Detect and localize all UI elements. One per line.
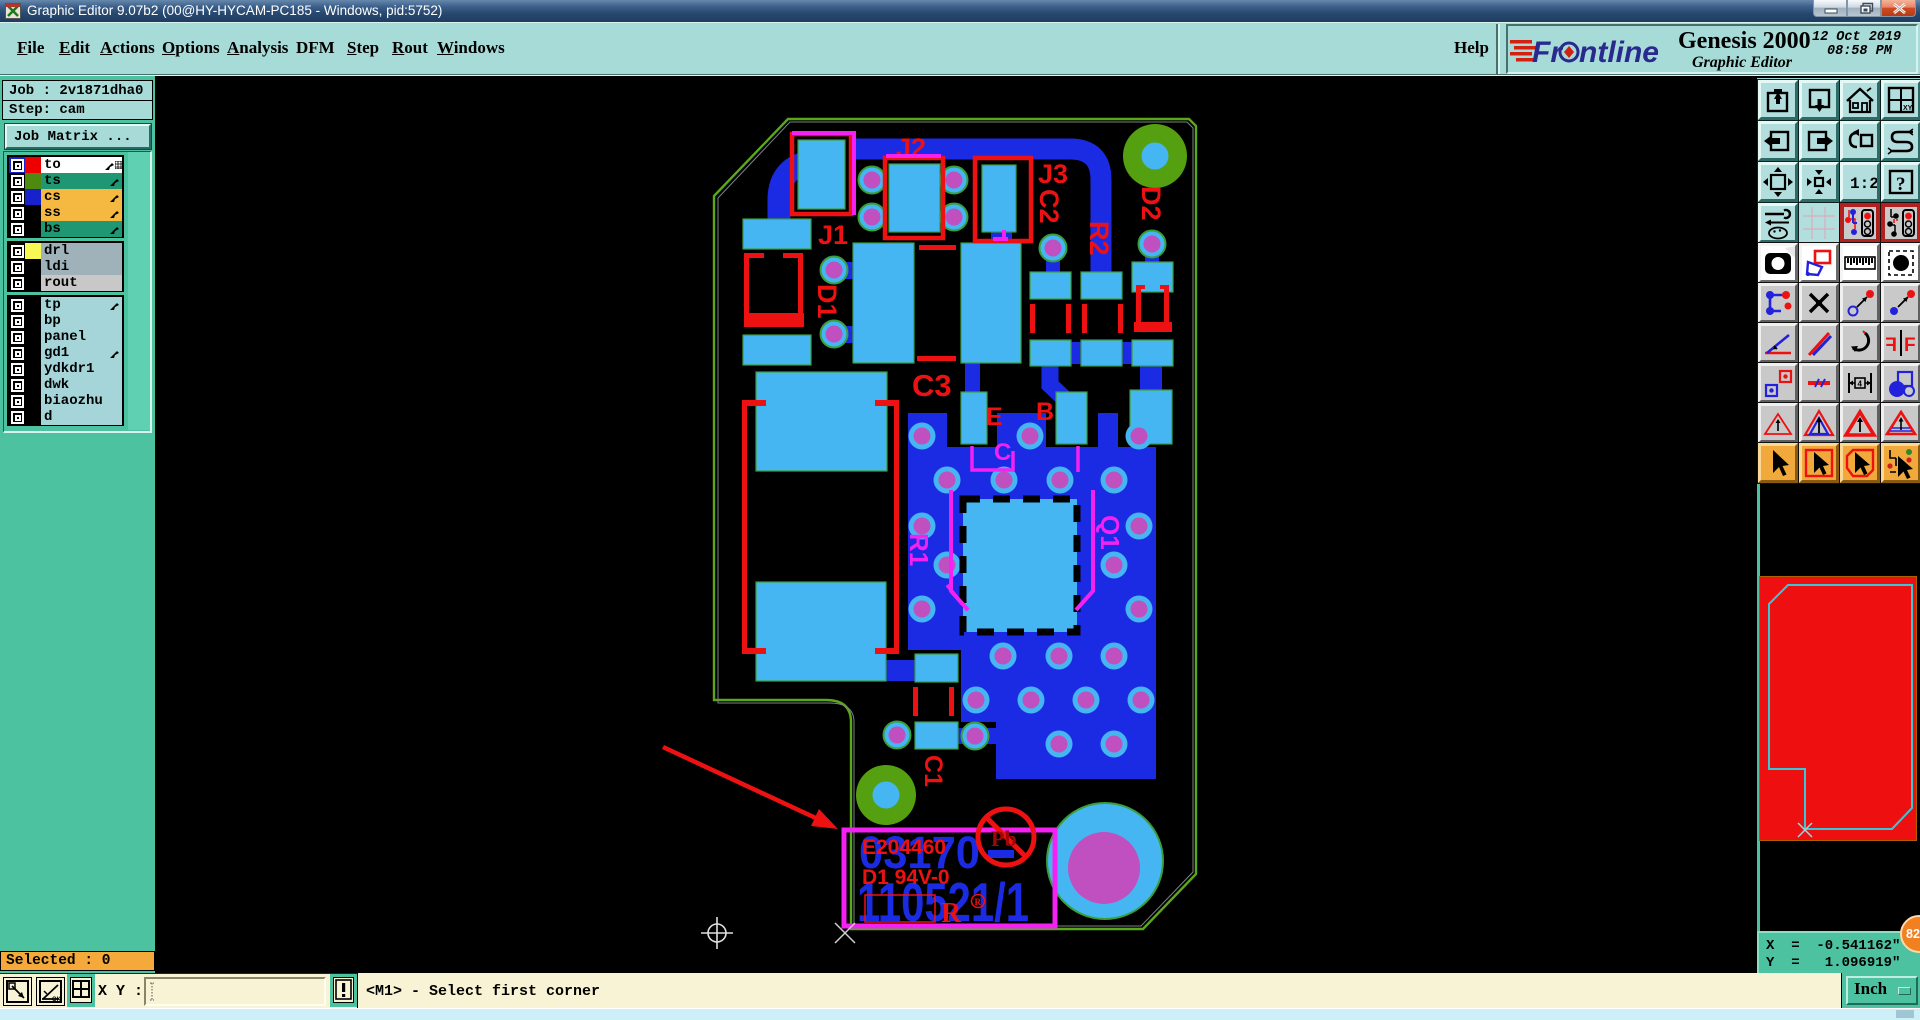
svg-text:Q1: Q1 [1095, 515, 1125, 550]
svg-text:R1: R1 [904, 533, 934, 566]
svg-text:D2: D2 [1136, 186, 1166, 221]
svg-text:R2: R2 [1084, 221, 1114, 256]
svg-text:C2: C2 [1034, 189, 1064, 224]
svg-text:D1 94V-0: D1 94V-0 [862, 866, 950, 889]
svg-text:D1: D1 [812, 284, 842, 319]
svg-text:C: C [994, 439, 1011, 466]
svg-text:J3: J3 [1038, 159, 1068, 189]
svg-text:J1: J1 [818, 220, 848, 250]
svg-text:1:2: 1:2 [1850, 175, 1877, 193]
svg-text:C3: C3 [912, 368, 952, 403]
svg-text:XY: XY [1903, 105, 1913, 112]
svg-text:Pb: Pb [991, 826, 1017, 851]
svg-text:E: E [986, 403, 1003, 431]
svg-text:?: ? [1896, 174, 1906, 195]
svg-text:ntline: ntline [1579, 36, 1659, 69]
svg-text:F: F [1904, 335, 1916, 356]
svg-text:R: R [941, 898, 962, 929]
svg-text:F: F [1885, 335, 1897, 356]
svg-text:C1: C1 [919, 755, 947, 787]
svg-text:B: B [1036, 398, 1054, 426]
svg-text:J2: J2 [896, 133, 926, 163]
svg-text:R: R [975, 897, 982, 907]
svg-text:OK: OK [52, 997, 62, 1003]
svg-text:E204460: E204460 [862, 836, 946, 859]
svg-text:4: 4 [1858, 380, 1863, 389]
